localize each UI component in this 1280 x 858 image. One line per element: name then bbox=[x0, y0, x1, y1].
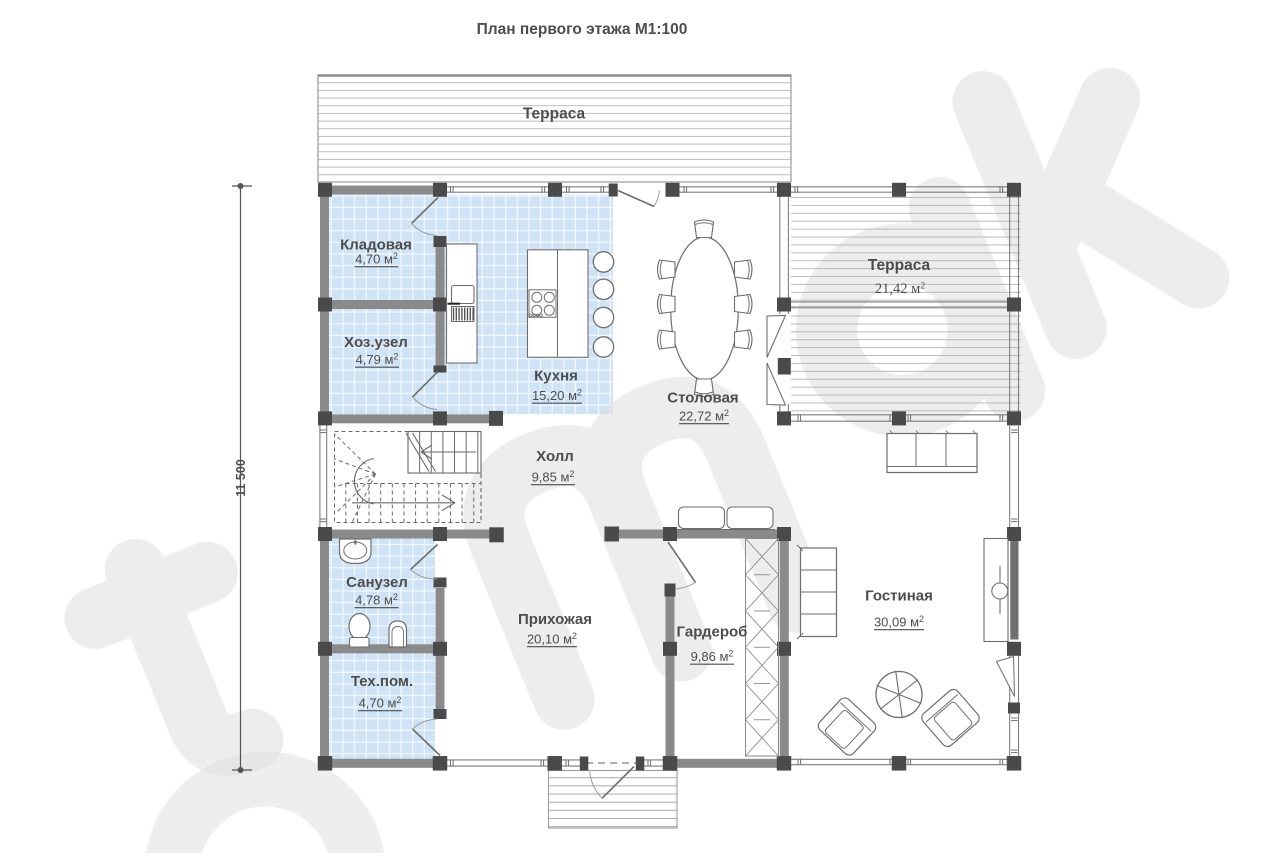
svg-text:4,70 м2: 4,70 м2 bbox=[359, 695, 402, 711]
svg-text:Терраса: Терраса bbox=[868, 257, 931, 274]
svg-text:9,85 м2: 9,85 м2 bbox=[532, 469, 575, 485]
svg-text:Гардероб: Гардероб bbox=[677, 624, 748, 641]
svg-text:11 500: 11 500 bbox=[234, 459, 248, 497]
svg-text:Хоз.узел: Хоз.узел bbox=[344, 334, 408, 351]
svg-text:Санузел: Санузел bbox=[346, 574, 408, 591]
svg-text:Кухня: Кухня bbox=[534, 368, 578, 385]
svg-text:Прихожая: Прихожая bbox=[518, 611, 592, 628]
svg-text:20,10 м2: 20,10 м2 bbox=[527, 631, 577, 647]
svg-text:Терраса: Терраса bbox=[523, 106, 586, 123]
svg-text:30,09 м2: 30,09 м2 bbox=[874, 614, 924, 630]
svg-text:9,86 м2: 9,86 м2 bbox=[691, 649, 734, 665]
svg-text:4,70 м2: 4,70 м2 bbox=[355, 251, 398, 267]
svg-text:21,42 м2: 21,42 м2 bbox=[875, 281, 925, 297]
svg-text:План первого этажа М1:100: План первого этажа М1:100 bbox=[477, 21, 688, 38]
svg-text:22,72 м2: 22,72 м2 bbox=[679, 408, 729, 424]
svg-text:15,20 м2: 15,20 м2 bbox=[532, 388, 582, 404]
svg-text:4,79 м2: 4,79 м2 bbox=[356, 352, 399, 368]
svg-text:Тех.пом.: Тех.пом. bbox=[351, 673, 413, 690]
svg-text:Гостиная: Гостиная bbox=[865, 588, 933, 605]
svg-text:Столовая: Столовая bbox=[667, 390, 738, 407]
svg-text:4,78 м2: 4,78 м2 bbox=[355, 592, 398, 608]
svg-text:Холл: Холл bbox=[536, 448, 574, 465]
